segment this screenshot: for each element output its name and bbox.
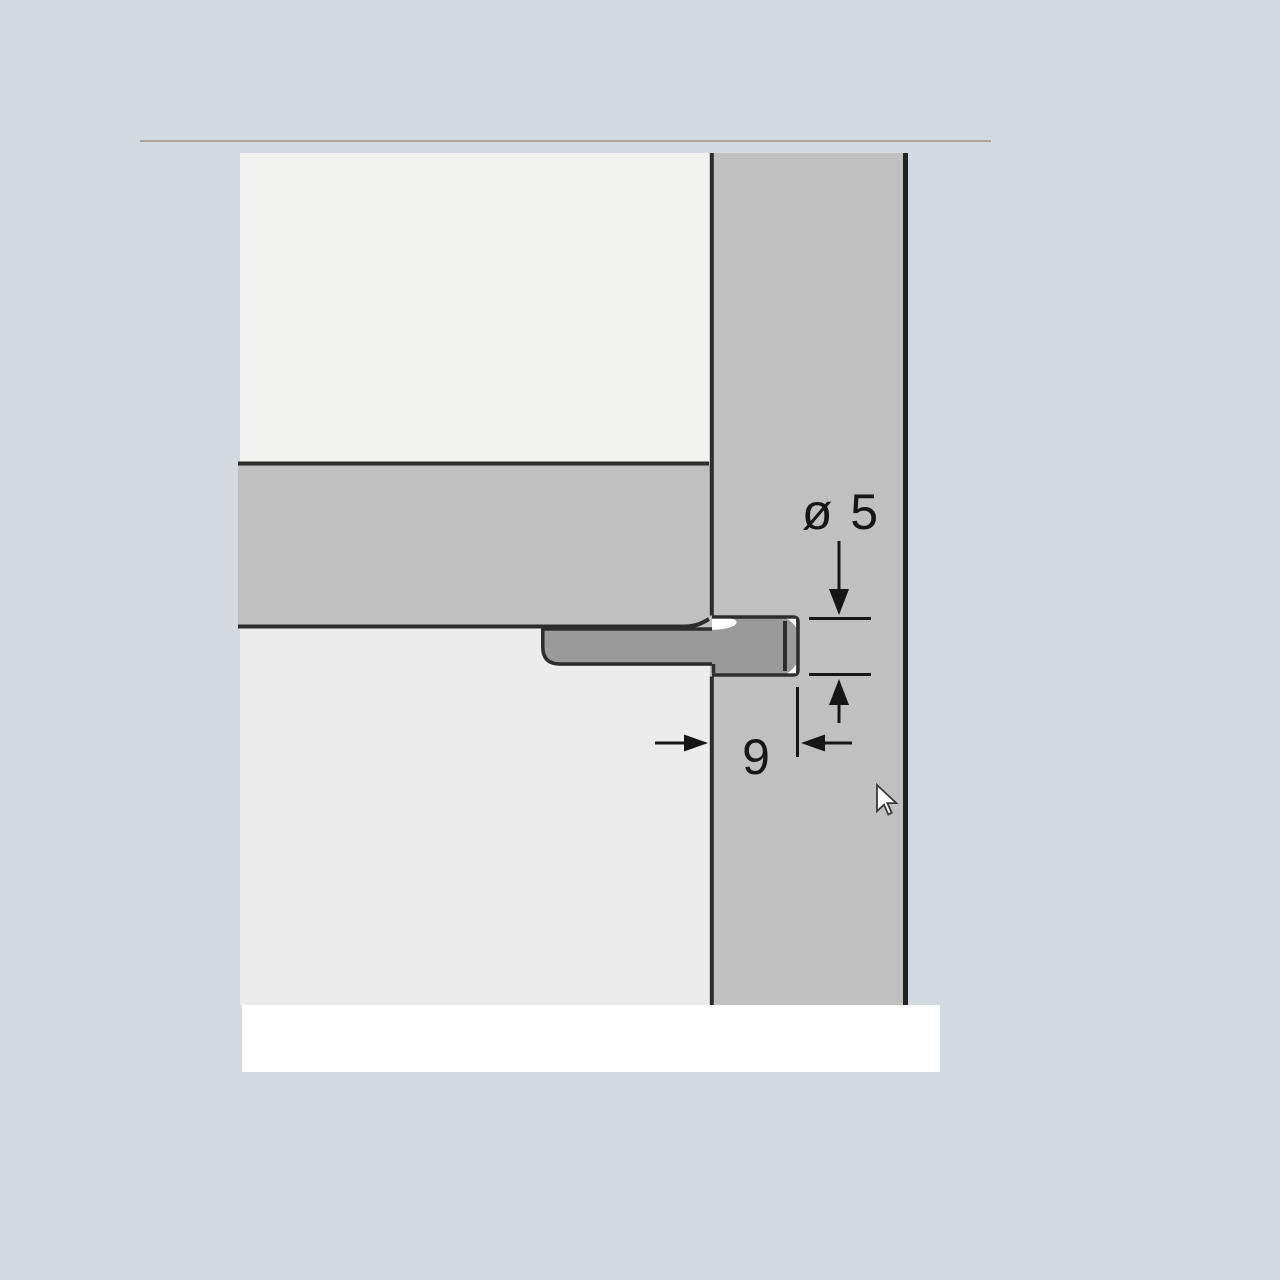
dowel-shaft (541, 628, 712, 666)
side-panel (710, 153, 906, 1005)
lower-panel (240, 628, 710, 1005)
cross-section-band (238, 462, 710, 627)
technical-diagram: ø 5 9 (0, 0, 1280, 1280)
upper-panel (240, 153, 710, 462)
screenshot-canvas: ø 5 9 (0, 0, 1280, 1280)
diameter-dimension-label: ø 5 (802, 484, 880, 540)
base-strip (242, 1005, 940, 1072)
depth-dimension-label: 9 (742, 729, 772, 785)
